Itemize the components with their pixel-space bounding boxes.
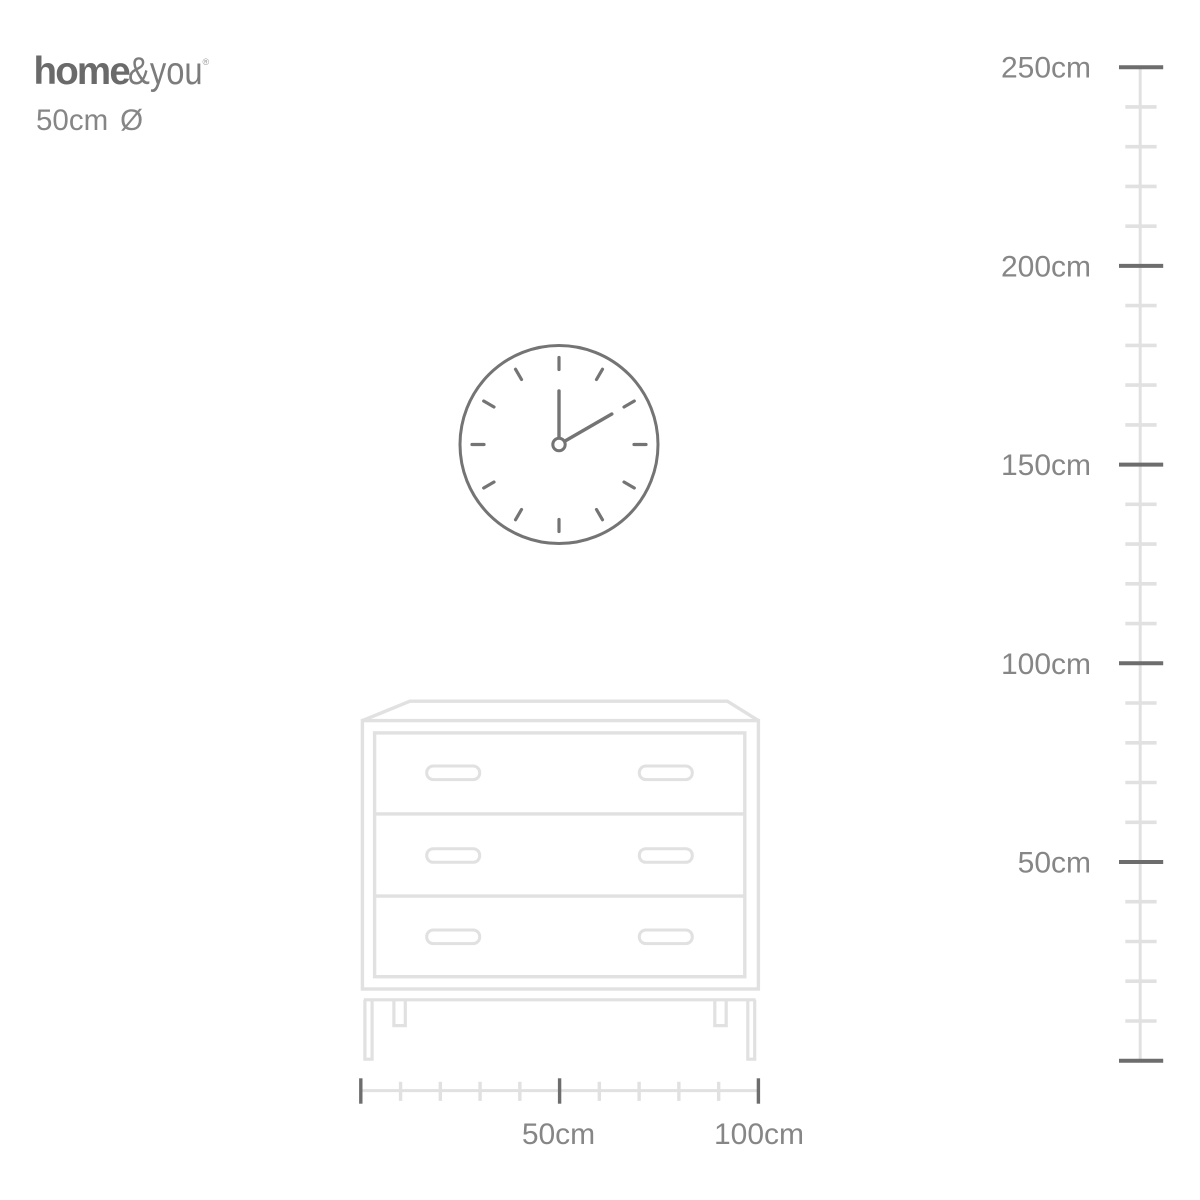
svg-text:250cm: 250cm: [1001, 52, 1091, 85]
svg-text:150cm: 150cm: [1001, 449, 1091, 482]
svg-text:200cm: 200cm: [1001, 250, 1091, 283]
svg-text:100cm: 100cm: [1001, 648, 1091, 681]
svg-text:100cm: 100cm: [714, 1118, 804, 1151]
svg-text:50cm: 50cm: [522, 1118, 595, 1151]
svg-text:50cm: 50cm: [1018, 847, 1091, 880]
